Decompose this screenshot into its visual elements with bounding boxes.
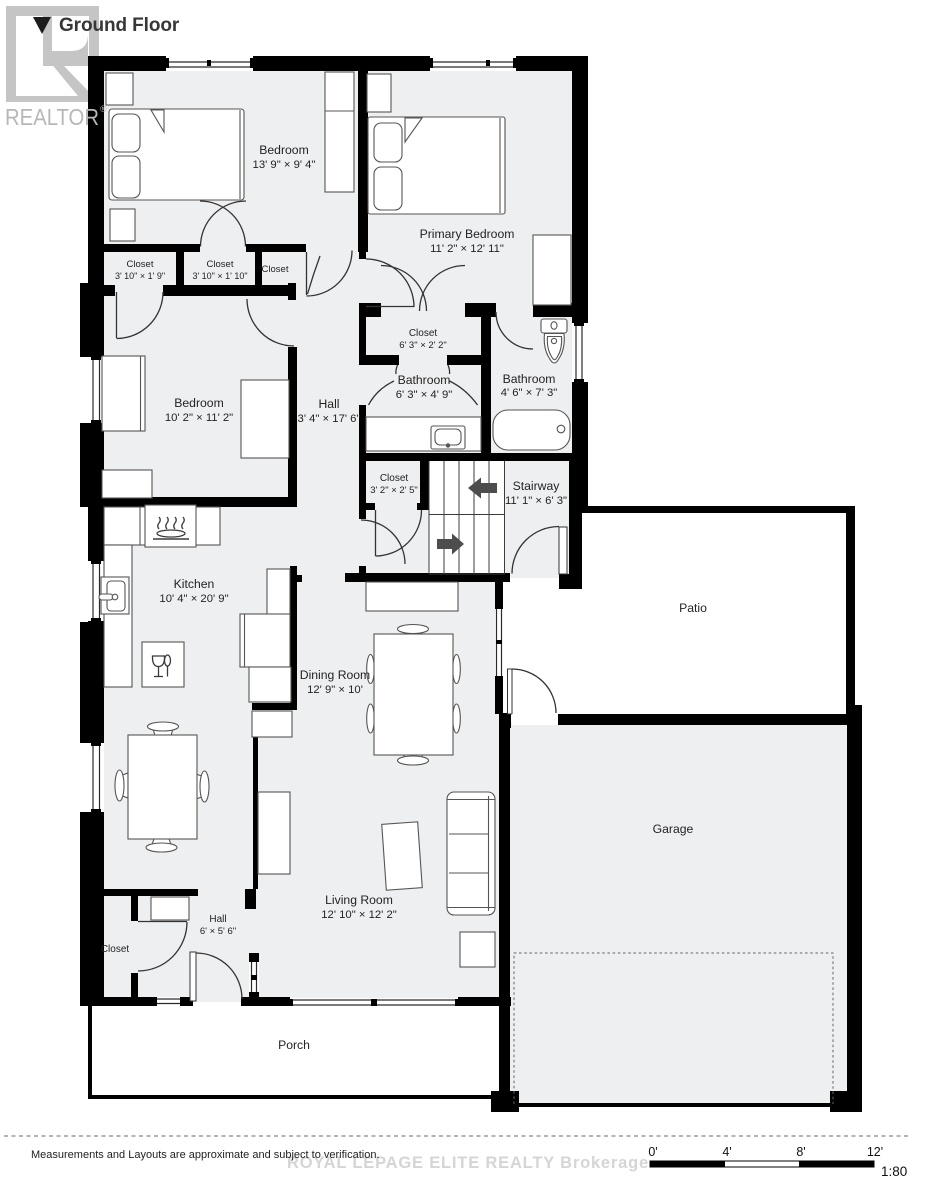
svg-text:Closet: Closet [380,473,409,484]
svg-text:Porch: Porch [278,1038,310,1052]
svg-text:Bedroom: Bedroom [259,143,308,157]
svg-text:6' × 5' 6": 6' × 5' 6" [200,926,236,937]
svg-text:12': 12' [867,1145,883,1159]
svg-text:Bathroom: Bathroom [503,372,556,386]
svg-text:13' 9" × 9' 4": 13' 9" × 9' 4" [253,159,316,171]
svg-text:Hall: Hall [209,914,226,925]
svg-text:4' 6" × 7' 3": 4' 6" × 7' 3" [501,387,558,399]
svg-text:10' 4" × 20' 9": 10' 4" × 20' 9" [159,593,228,605]
svg-text:Primary Bedroom: Primary Bedroom [420,227,515,241]
svg-text:6' 3" × 4' 9": 6' 3" × 4' 9" [396,389,453,401]
svg-text:3' 4" × 17' 6": 3' 4" × 17' 6" [298,413,361,425]
svg-text:4': 4' [722,1145,731,1159]
svg-text:Measurements and Layouts are a: Measurements and Layouts are approximate… [31,1149,380,1161]
svg-text:11' 1" × 6' 3": 11' 1" × 6' 3" [505,495,567,507]
svg-text:Dining Room: Dining Room [300,668,370,682]
svg-text:Closet: Closet [207,259,234,270]
svg-text:3' 10" × 1' 10": 3' 10" × 1' 10" [192,271,247,281]
svg-text:Closet: Closet [101,944,130,955]
svg-text:Bathroom: Bathroom [398,373,451,387]
svg-text:12' 9" × 10': 12' 9" × 10' [307,684,363,696]
svg-text:Kitchen: Kitchen [174,577,215,591]
svg-text:Garage: Garage [653,822,694,836]
svg-text:3' 2" × 2' 5": 3' 2" × 2' 5" [370,485,418,496]
svg-text:11' 2" × 12' 11": 11' 2" × 12' 11" [430,243,504,255]
svg-text:Closet: Closet [409,328,438,339]
svg-text:12' 10" × 12' 2": 12' 10" × 12' 2" [321,909,396,921]
svg-text:Patio: Patio [679,601,707,615]
svg-text:0': 0' [648,1145,657,1159]
svg-text:Ground Floor: Ground Floor [59,15,180,36]
svg-text:Closet: Closet [262,264,289,275]
svg-text:Hall: Hall [319,397,340,411]
svg-text:Bedroom: Bedroom [174,396,223,410]
svg-text:REALTOR: REALTOR [5,104,99,130]
svg-text:3' 10" × 1' 9": 3' 10" × 1' 9" [115,271,165,281]
svg-text:10' 2" × 11' 2": 10' 2" × 11' 2" [165,412,233,424]
svg-text:Closet: Closet [127,259,154,270]
svg-text:Stairway: Stairway [513,479,561,493]
svg-text:8': 8' [796,1145,805,1159]
svg-text:1:80: 1:80 [881,1164,907,1179]
svg-text:Living Room: Living Room [325,893,393,907]
svg-text:6' 3" × 2' 2": 6' 3" × 2' 2" [399,340,447,351]
